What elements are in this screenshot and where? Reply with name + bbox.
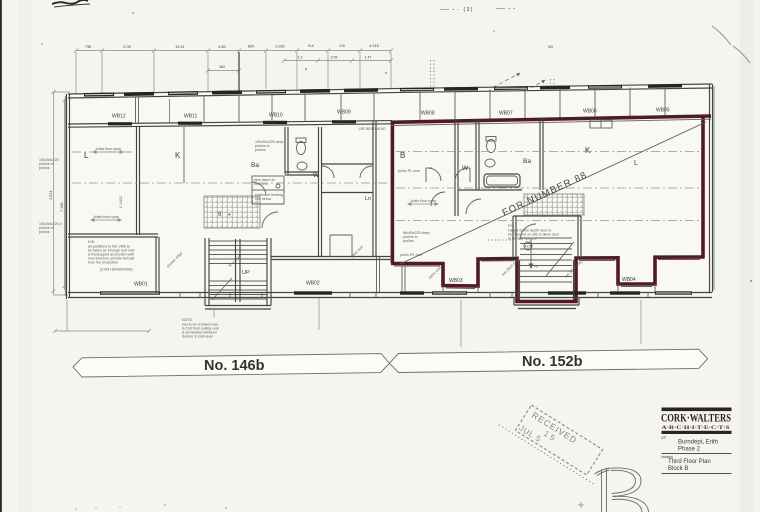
svg-text:WB04: WB04 xyxy=(622,277,636,283)
svg-text:2.05: 2.05 xyxy=(331,56,338,60)
svg-text:P.S.: P.S. xyxy=(508,224,514,228)
svg-text:K: K xyxy=(175,151,181,160)
svg-text:WB06: WB06 xyxy=(583,109,597,115)
svg-text:hour fire protection: hour fire protection xyxy=(88,261,118,265)
svg-text:Ba: Ba xyxy=(251,162,259,169)
svg-text:3.60: 3.60 xyxy=(218,45,225,49)
svg-text:up: up xyxy=(534,264,538,268)
svg-text:d: d xyxy=(385,71,387,75)
svg-text:UP: UP xyxy=(242,270,250,276)
svg-text:NOTE:: NOTE: xyxy=(182,318,193,322)
svg-text:p: p xyxy=(305,67,307,71)
svg-text:8.4: 8.4 xyxy=(308,44,313,48)
svg-text:4.014: 4.014 xyxy=(49,190,53,200)
svg-text:AOV: AOV xyxy=(525,245,533,249)
svg-text:7.168: 7.168 xyxy=(60,202,64,212)
svg-text:13R READHEAD: 13R READHEAD xyxy=(358,127,386,131)
svg-text:*: * xyxy=(228,213,231,220)
svg-text:to be fully opened: to be fully opened xyxy=(508,237,536,241)
svg-text:Ln: Ln xyxy=(365,196,371,202)
svg-text:(2.0M HEADROOM): (2.0M HEADROOM) xyxy=(100,268,133,272)
svg-text:WB12: WB12 xyxy=(112,114,126,120)
svg-text:2.05: 2.05 xyxy=(123,45,130,49)
svg-text:Joists floor span: Joists floor span xyxy=(410,199,436,203)
svg-text:purlins: purlins xyxy=(39,166,50,170)
svg-text:No. 146b: No. 146b xyxy=(204,358,265,374)
svg-text:W: W xyxy=(313,172,320,179)
svg-text:WB05: WB05 xyxy=(656,108,670,114)
svg-text:WB02: WB02 xyxy=(306,281,320,287)
svg-text:362: 362 xyxy=(219,65,225,69)
svg-text:1.2: 1.2 xyxy=(298,56,303,60)
svg-text:WB01: WB01 xyxy=(134,282,148,288)
svg-text:WB03: WB03 xyxy=(449,278,463,284)
svg-text:WB10: WB10 xyxy=(269,113,283,119)
svg-text:CORK·WALTERS: CORK·WALTERS xyxy=(661,413,731,425)
svg-text:purlins: purlins xyxy=(39,230,50,234)
svg-text:K: K xyxy=(585,146,591,155)
svg-text:purlins: purlins xyxy=(403,239,414,243)
svg-text:job: job xyxy=(661,436,666,440)
svg-text:C 4302: C 4302 xyxy=(119,196,123,208)
svg-text:WB11: WB11 xyxy=(184,113,197,119)
svg-text:824: 824 xyxy=(248,45,254,49)
svg-text:Third Floor Plan: Third Floor Plan xyxy=(668,459,711,465)
svg-text:dormer & stub level: dormer & stub level xyxy=(182,335,213,339)
svg-text:Ba: Ba xyxy=(523,158,531,165)
svg-text:purlins: purlins xyxy=(255,148,266,152)
svg-text:purlin PE over: purlin PE over xyxy=(400,253,423,257)
svg-text:purlin PL over: purlin PL over xyxy=(398,169,421,173)
svg-text:4.016: 4.016 xyxy=(369,44,379,48)
svg-text:Burndept, Erith: Burndept, Erith xyxy=(678,440,718,446)
svg-text:WB08: WB08 xyxy=(421,111,435,117)
svg-text:( 3 ): ( 3 ) xyxy=(464,7,473,13)
svg-text:1.47: 1.47 xyxy=(365,56,372,60)
svg-text:736: 736 xyxy=(85,45,91,49)
svg-text:B: B xyxy=(400,151,405,160)
svg-text:NO: NO xyxy=(548,45,554,49)
svg-text:9.8: 9.8 xyxy=(339,44,344,48)
svg-text:A·R·C·H·I·T·E·C·T·S: A·R·C·H·I·T·E·C·T·S xyxy=(662,425,730,431)
svg-text:N.B.: N.B. xyxy=(88,240,95,244)
svg-text:Phase 2: Phase 2 xyxy=(678,447,701,453)
svg-text:No. 152b: No. 152b xyxy=(522,354,583,370)
svg-text:Block B: Block B xyxy=(668,466,688,472)
svg-text:10.41: 10.41 xyxy=(175,45,185,49)
svg-text:1.032: 1.032 xyxy=(275,45,285,49)
svg-text:Joists floor span: Joists floor span xyxy=(93,215,119,219)
svg-text:WB09: WB09 xyxy=(337,110,351,116)
svg-text:WB07: WB07 xyxy=(499,110,513,116)
svg-text:L: L xyxy=(634,160,638,167)
svg-text:Joists floor span: Joists floor span xyxy=(95,147,121,151)
